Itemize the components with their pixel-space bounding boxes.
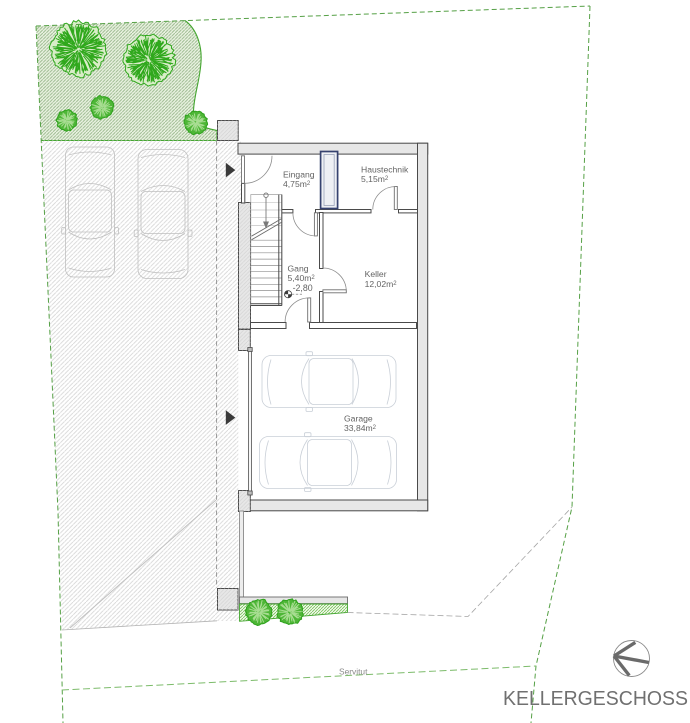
svg-text:5,40m2: 5,40m2	[288, 273, 316, 283]
svg-text:5,15m2: 5,15m2	[361, 174, 389, 184]
svg-text:33,84m2: 33,84m2	[344, 423, 377, 433]
svg-text:4,75m2: 4,75m2	[283, 179, 311, 189]
svg-text:Servitut: Servitut	[339, 666, 368, 676]
svg-text:KELLERGESCHOSS: KELLERGESCHOSS	[503, 687, 688, 710]
svg-text:Gang: Gang	[288, 263, 309, 273]
svg-text:12,02m2: 12,02m2	[365, 279, 398, 289]
svg-text:Keller: Keller	[365, 269, 387, 279]
svg-text:-2,80: -2,80	[293, 283, 313, 293]
